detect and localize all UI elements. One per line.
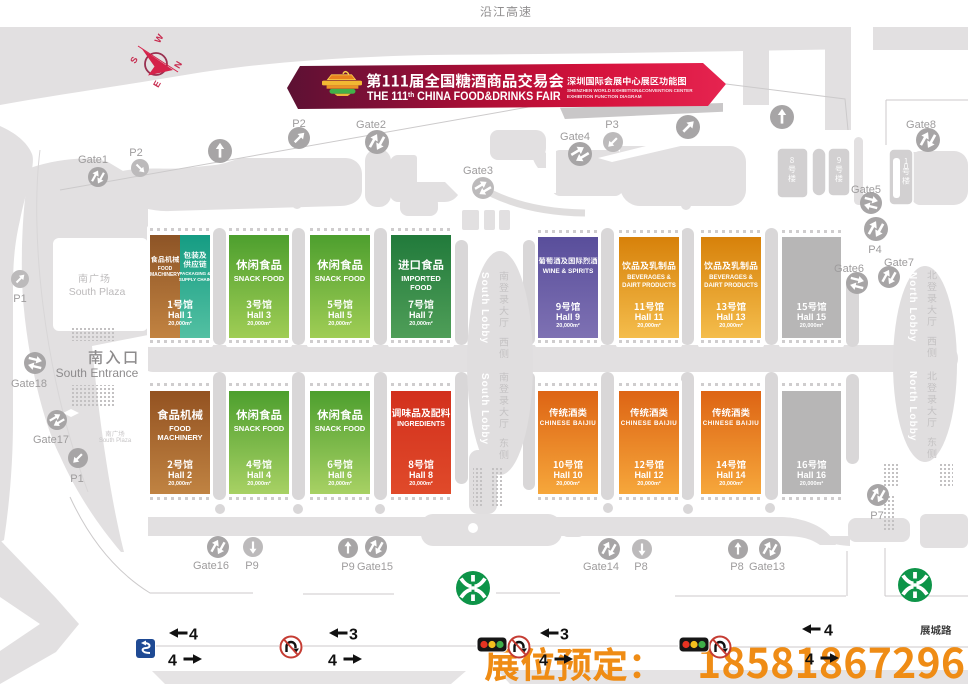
svg-text:S: S: [128, 55, 140, 65]
svg-text:Gate7: Gate7: [884, 257, 914, 269]
svg-text:Gate4: Gate4: [560, 131, 590, 143]
svg-text:P9: P9: [245, 560, 258, 572]
svg-text:Gate5: Gate5: [851, 184, 881, 196]
svg-text:Gate3: Gate3: [463, 165, 493, 177]
svg-text:P2: P2: [129, 147, 142, 159]
svg-text:Gate6: Gate6: [834, 263, 864, 275]
svg-text:P3: P3: [605, 119, 618, 131]
svg-text:Gate16: Gate16: [193, 560, 229, 572]
svg-text:Gate18: Gate18: [11, 378, 47, 390]
svg-text:Gate15: Gate15: [357, 561, 393, 573]
svg-text:Gate8: Gate8: [906, 119, 936, 131]
svg-text:P1: P1: [70, 473, 83, 485]
svg-text:Gate14: Gate14: [583, 561, 619, 573]
svg-text:N: N: [172, 59, 184, 70]
svg-text:E: E: [151, 79, 163, 89]
svg-text:P9: P9: [341, 561, 354, 573]
svg-text:Gate1: Gate1: [78, 154, 108, 166]
svg-text:W: W: [153, 32, 166, 45]
svg-text:Gate17: Gate17: [33, 434, 69, 446]
svg-text:P1: P1: [13, 293, 26, 305]
svg-text:Gate13: Gate13: [749, 561, 785, 573]
svg-text:P4: P4: [868, 244, 881, 256]
svg-text:P8: P8: [730, 561, 743, 573]
svg-text:P8: P8: [634, 561, 647, 573]
svg-text:Gate2: Gate2: [356, 119, 386, 131]
svg-text:P2: P2: [292, 118, 305, 130]
svg-text:P7: P7: [870, 510, 883, 522]
